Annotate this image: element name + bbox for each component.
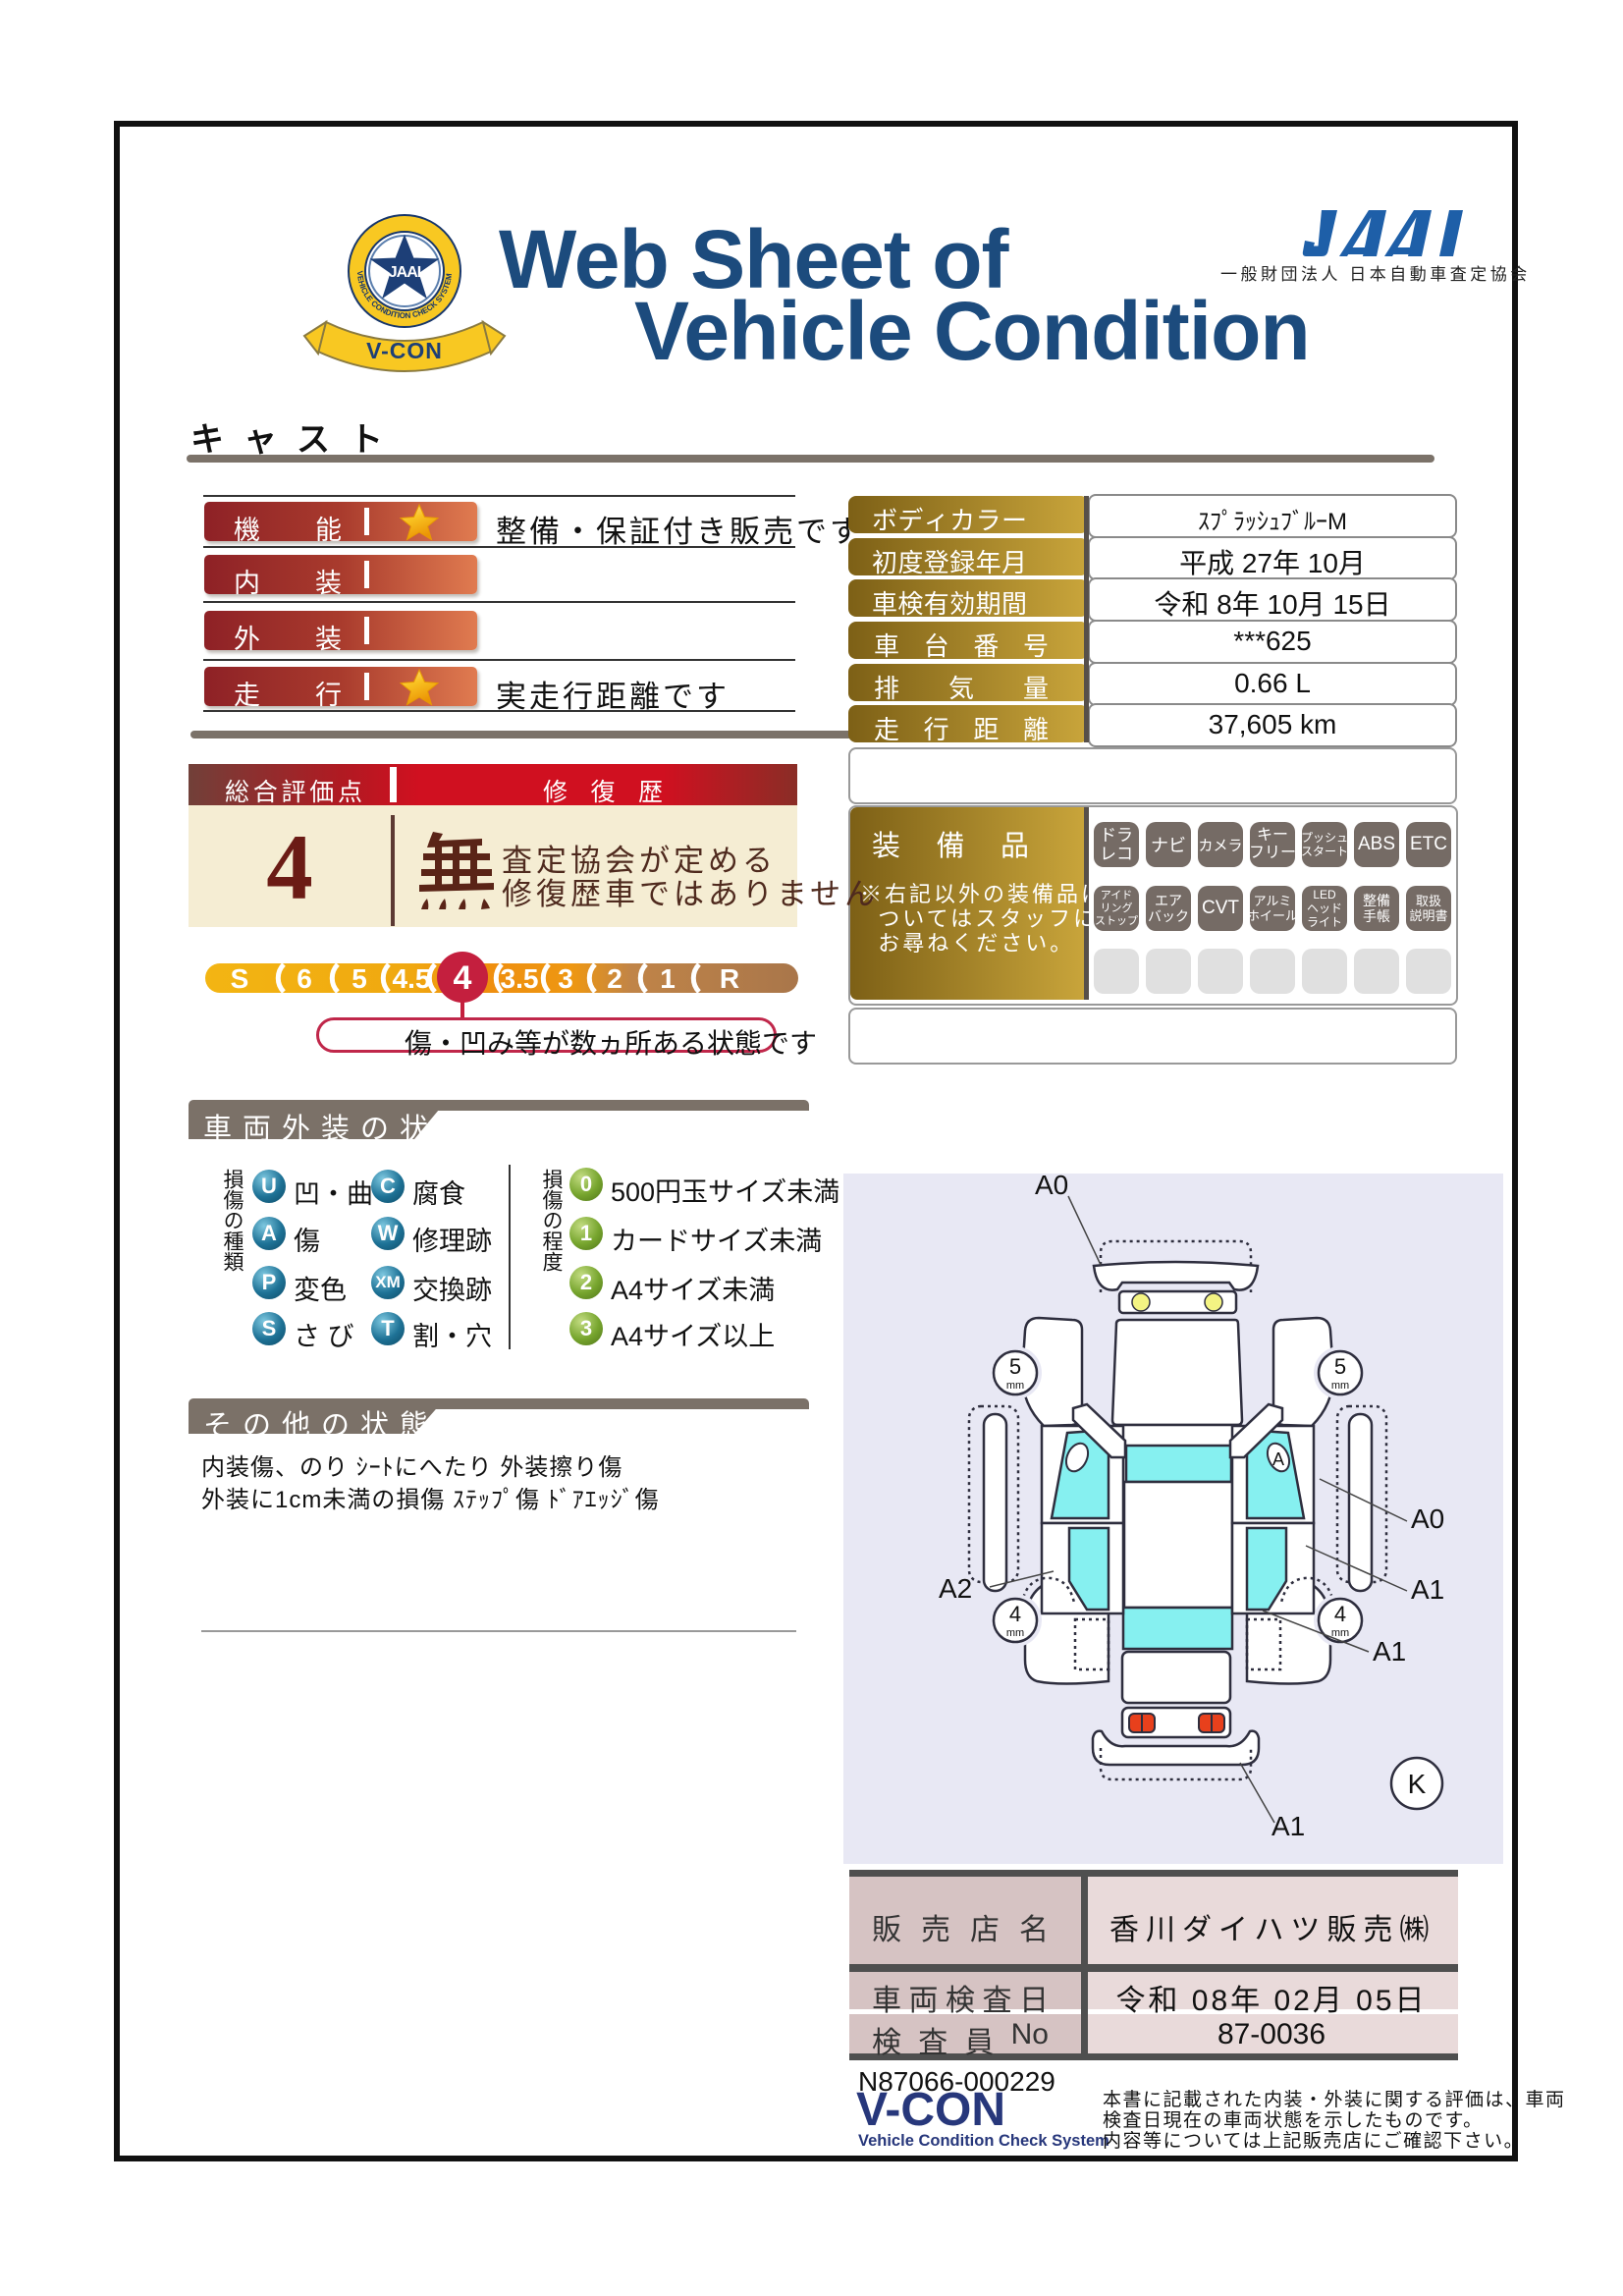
- svg-text:mm: mm: [1331, 1380, 1349, 1392]
- svg-text:5: 5: [352, 963, 367, 994]
- svg-text:4: 4: [454, 959, 472, 997]
- svg-text:A2: A2: [939, 1573, 972, 1604]
- svg-text:5: 5: [1334, 1354, 1346, 1379]
- svg-text:A1: A1: [1373, 1636, 1406, 1667]
- svg-text:4: 4: [1334, 1602, 1346, 1626]
- svg-text:mm: mm: [1006, 1627, 1024, 1639]
- svg-text:1: 1: [660, 963, 676, 994]
- svg-text:4: 4: [1009, 1602, 1021, 1626]
- svg-text:A1: A1: [1271, 1811, 1305, 1841]
- svg-text:A0: A0: [1035, 1174, 1068, 1200]
- svg-text:3: 3: [558, 963, 573, 994]
- svg-text:mm: mm: [1006, 1380, 1024, 1392]
- svg-text:4.5: 4.5: [393, 963, 431, 994]
- svg-text:2: 2: [607, 963, 622, 994]
- svg-text:A: A: [1272, 1449, 1284, 1469]
- svg-text:3.5: 3.5: [501, 963, 539, 994]
- svg-text:6: 6: [297, 963, 312, 994]
- svg-text:A0: A0: [1411, 1503, 1444, 1534]
- svg-text:R: R: [720, 963, 739, 994]
- svg-text:S: S: [231, 963, 249, 994]
- svg-text:V-CON: V-CON: [366, 338, 443, 363]
- svg-text:A1: A1: [1411, 1574, 1444, 1605]
- svg-text:K: K: [1408, 1769, 1427, 1799]
- svg-text:5: 5: [1009, 1354, 1021, 1379]
- svg-text:mm: mm: [1331, 1627, 1349, 1639]
- svg-text:JAAI: JAAI: [389, 264, 421, 281]
